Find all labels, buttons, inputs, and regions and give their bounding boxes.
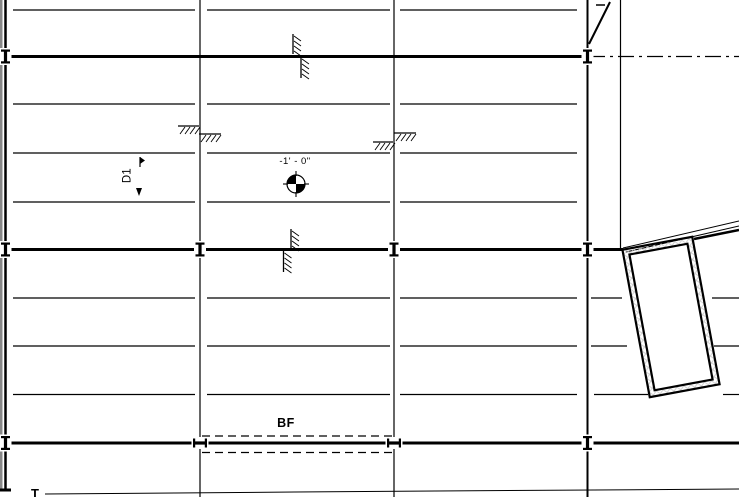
earth-hatch-tick <box>396 134 401 141</box>
earth-hatch-tick <box>292 241 299 246</box>
earth-hatch-tick <box>292 231 299 236</box>
earth-hatch-icon <box>291 229 299 251</box>
earth-hatch-tick <box>195 127 200 134</box>
earth-hatch-icon <box>293 34 301 56</box>
grid-connection-tick-icon <box>0 241 12 258</box>
earth-hatch-tick <box>302 59 309 64</box>
earth-hatch-icon <box>301 57 309 79</box>
earth-hatch-tick <box>380 143 385 150</box>
earth-hatch-icon <box>178 126 200 134</box>
earth-hatch-tick <box>190 127 195 134</box>
earth-hatch-icon <box>373 142 395 150</box>
earth-hatch-tick <box>285 268 292 273</box>
span-arrow-icon <box>140 157 145 167</box>
deck-span-tag[interactable]: D1 <box>122 154 134 198</box>
grid-connection-tick-icon <box>386 437 403 449</box>
roof-edge <box>589 2 610 44</box>
earth-hatch-tick <box>216 135 221 142</box>
earth-hatch-icon <box>284 251 292 273</box>
earth-hatch-tick <box>285 253 292 258</box>
opening-inner-edge <box>629 244 712 390</box>
earth-hatch-tick <box>385 143 390 150</box>
earth-hatch-tick <box>302 69 309 74</box>
earth-hatch-tick <box>292 236 299 241</box>
earth-hatch-tick <box>294 46 301 51</box>
earth-hatch-icon <box>394 133 416 141</box>
grid-connection-tick-icon <box>582 241 594 258</box>
grade-line <box>45 492 295 494</box>
earth-hatch-tick <box>285 258 292 263</box>
earth-hatch-tick <box>375 143 380 150</box>
spot-elevation-label[interactable]: -1' - 0" <box>262 157 328 167</box>
grid-connection-tick-icon <box>194 241 206 258</box>
earth-hatch-icon <box>199 134 221 142</box>
earth-hatch-tick <box>401 134 406 141</box>
earth-hatch-tick <box>185 127 190 134</box>
earth-hatch-tick <box>206 135 211 142</box>
grade-line <box>295 489 739 492</box>
earth-hatch-tick <box>411 134 416 141</box>
grid-connection-tick-icon <box>192 437 209 449</box>
earth-hatch-tick <box>406 134 411 141</box>
grid-connection-tick-icon <box>0 435 12 452</box>
earth-hatch-tick <box>201 135 206 142</box>
grade-beam-tag[interactable]: BF <box>266 417 306 430</box>
earth-hatch-tick <box>211 135 216 142</box>
earth-hatch-tick <box>302 64 309 69</box>
earth-hatch-tick <box>294 41 301 46</box>
earth-hatch-tick <box>302 74 309 79</box>
span-arrow-icon <box>136 188 142 196</box>
grid-connection-tick-icon <box>0 48 12 65</box>
bottom-partial-tag[interactable]: T <box>31 487 39 497</box>
earth-hatch-tick <box>180 127 185 134</box>
plan-drawing <box>0 0 739 497</box>
cad-canvas[interactable]: -1' - 0" D1 BF T <box>0 0 739 497</box>
grid-connection-tick-icon <box>582 48 594 65</box>
shaft-opening[interactable] <box>622 237 719 397</box>
grid-connection-tick-icon <box>582 435 594 452</box>
grid-connection-tick-icon <box>388 241 400 258</box>
earth-hatch-tick <box>294 36 301 41</box>
earth-hatch-tick <box>285 263 292 268</box>
spot-elevation-symbol[interactable] <box>283 171 309 197</box>
